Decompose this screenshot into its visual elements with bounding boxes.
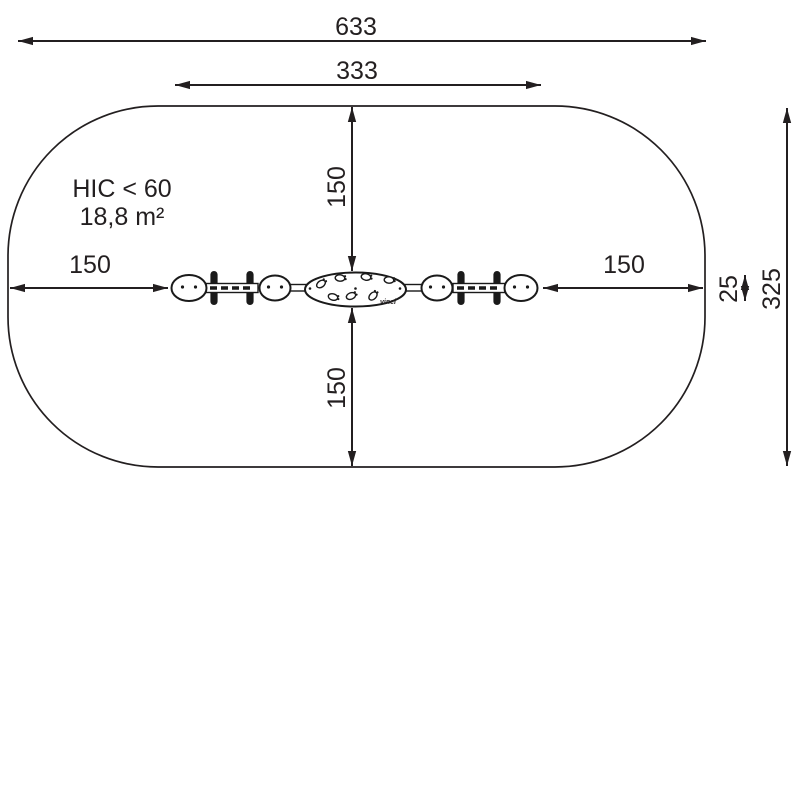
dimension-left-clearance-label: 150 bbox=[69, 251, 111, 279]
platform-disc-4 bbox=[505, 275, 538, 301]
balance-beam-right bbox=[453, 284, 505, 293]
safety-zone-diagram: 633 333 150 150 150 150 25 325 HIC < 60 … bbox=[0, 0, 800, 800]
platform-disc-2 bbox=[260, 276, 291, 301]
area-annotation: 18,8 m² bbox=[80, 203, 165, 231]
hic-annotation: HIC < 60 bbox=[72, 175, 171, 203]
dimension-bottom-clearance-label: 150 bbox=[323, 367, 351, 409]
equipment-group: vinci bbox=[172, 271, 538, 307]
platform-disc-1 bbox=[172, 275, 207, 301]
dimension-right-clearance-label: 150 bbox=[603, 251, 645, 279]
dimension-top-clearance-label: 150 bbox=[323, 166, 351, 208]
balance-beam-left bbox=[206, 284, 258, 293]
dimension-total-width-label: 633 bbox=[335, 13, 377, 41]
dimension-total-depth-label: 325 bbox=[758, 268, 786, 310]
platform-disc-3 bbox=[422, 276, 453, 301]
dimension-equipment-length-label: 333 bbox=[336, 57, 378, 85]
dimension-equipment-depth-label: 25 bbox=[715, 275, 743, 303]
maker-mark: vinci bbox=[380, 299, 397, 306]
diagram-canvas: 633 333 150 150 150 150 25 325 HIC < 60 … bbox=[0, 0, 800, 800]
